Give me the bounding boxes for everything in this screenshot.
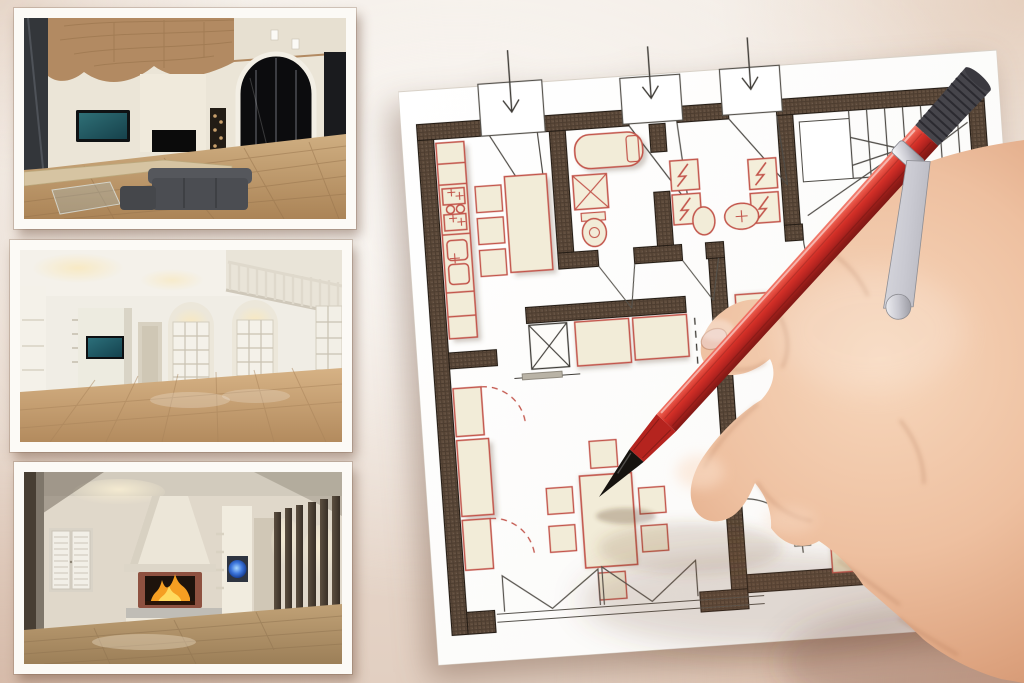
bedroom-wardrobe [735,290,808,339]
floor-plan [395,5,1024,665]
hob-burners-bottom [444,213,467,230]
dining-table [579,473,637,568]
hob-burners-top [442,188,465,205]
render-thumbnail-living-vaulted [14,8,356,229]
render-2-image [20,250,342,442]
embers [145,601,195,605]
floor-plan-sheet [395,5,1024,665]
arched-niche-1 [168,302,214,390]
kitchen-chair [475,185,503,213]
doorway-inner [142,326,158,386]
kitchen-chair [477,217,505,245]
bench [830,521,917,573]
fireplace-opening [152,130,196,152]
mantel [124,564,216,572]
wardrobe [575,318,632,366]
ceiling-light-glow [32,253,124,283]
kitchen-table-set [474,174,553,277]
left-cabinet [20,286,46,392]
floor-light-pool [150,392,230,408]
tv-screen [79,113,127,139]
stock-photo-canvas: { "scene": { "type": "architecture conce… [0,0,1024,683]
blue-backlit-art [229,560,247,578]
render-thumbnail-fireplace-room [14,462,352,674]
render-3-image [24,472,342,664]
wardrobe [632,314,689,360]
ceiling-light-glow [140,269,204,291]
partition-tv-screen [88,338,122,357]
render-thumbnail-white-loft [10,240,352,452]
fire-light-pool [92,634,196,650]
bathtub [574,131,644,170]
render-1-image [24,18,346,219]
sink-basin-2 [448,263,469,284]
kitchen-chair [479,249,507,277]
kitchen-table [504,174,553,273]
partition-with-tv [72,308,132,392]
shuttered-window [49,528,93,592]
floor-light-pool [222,389,290,403]
bedroom-wardrobe [813,281,878,327]
